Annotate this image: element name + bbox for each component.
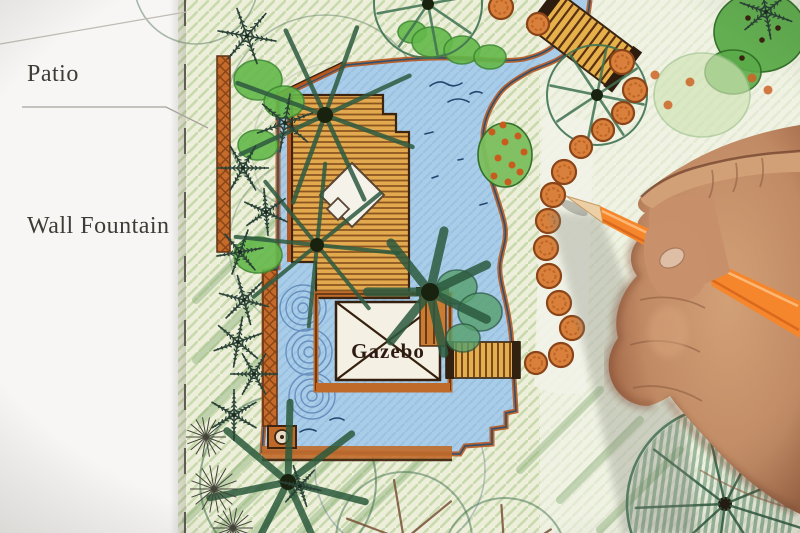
photo-vignette [0, 0, 800, 533]
plan-drawing: Gazebo Patio Wall Fount [0, 0, 800, 533]
landscape-plan-photo: Gazebo Patio Wall Fount [0, 0, 800, 533]
